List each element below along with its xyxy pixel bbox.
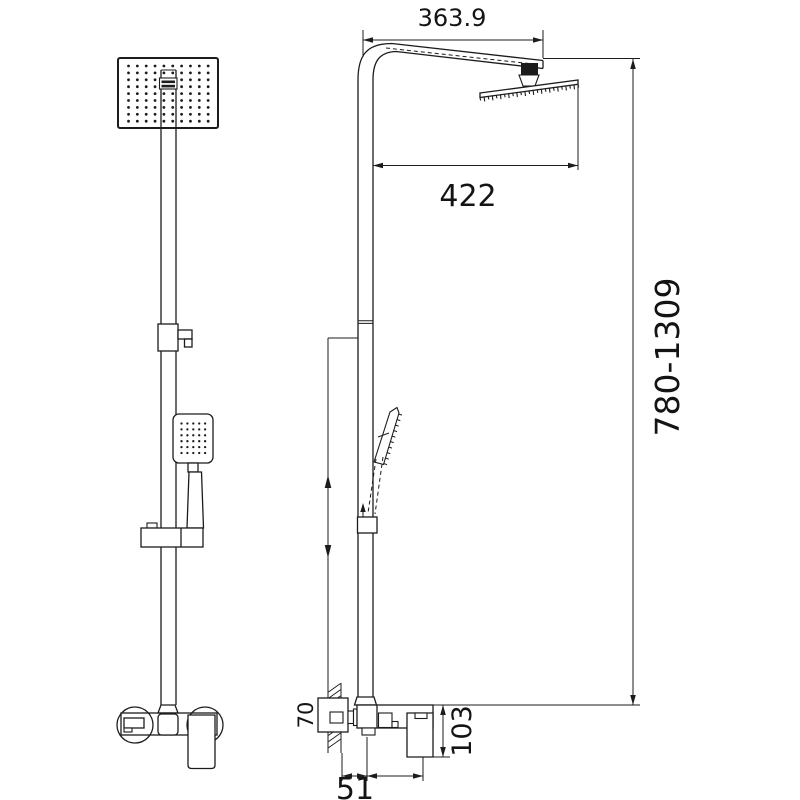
hand-shower-front [173,414,213,528]
side-view [318,44,579,758]
slider-knob [178,330,192,339]
mixer-lever-side [407,713,433,757]
mixer-front [117,705,223,769]
dim-label-head-width: 422 [439,179,496,214]
slider-bracket [158,324,178,351]
hand-shower-face [173,414,213,463]
mixer-inlet-nut-side [355,697,377,705]
hand-shower-handle [187,472,204,528]
holder-side [358,517,378,533]
dimension-head-width: 422 [373,84,578,214]
drawing-canvas: 363.9 422 780-1309 70 103 51 [0,0,800,800]
dimension-height-range: 780-1309 [433,59,687,706]
mixer-cartridge [158,714,178,735]
insert-arrow [360,503,365,512]
adjust-arrow-up [325,475,332,488]
dim-label-height-range: 780-1309 [648,278,687,437]
dim-label-arm-length: 363.9 [418,4,487,32]
front-view [117,58,223,769]
adjust-arrow-down [325,545,332,558]
hand-shower-neck [188,463,198,472]
dim-label-wall-plate: 70 [294,702,318,729]
head-connector-block [521,63,538,75]
overhead-shower-face [118,58,218,128]
overhead-nozzle-grid [127,65,209,123]
pipe-joint [358,321,373,324]
mixer-lever-front [188,715,215,769]
head-connector-nut [519,75,539,86]
dimension-wall-plate: 70 [294,702,318,729]
dim-label-wall-to-pipe: 51 [336,772,374,800]
spout [124,718,144,728]
side-pipe-and-arm-inner [373,52,543,698]
holder-body [141,528,203,547]
mixer-side [318,697,433,757]
mixer-foot [362,728,375,735]
side-pipe-and-arm-outer [358,44,543,698]
shower-technical-drawing: 363.9 422 780-1309 70 103 51 [0,0,800,800]
mixer-inlet-nut [158,705,178,713]
dim-label-mixer-height: 103 [447,705,478,757]
holder-tab [147,523,157,528]
dimension-mixer-height: 103 [433,705,478,757]
hand-shower-side [360,408,402,518]
arm-center-line [386,48,538,65]
